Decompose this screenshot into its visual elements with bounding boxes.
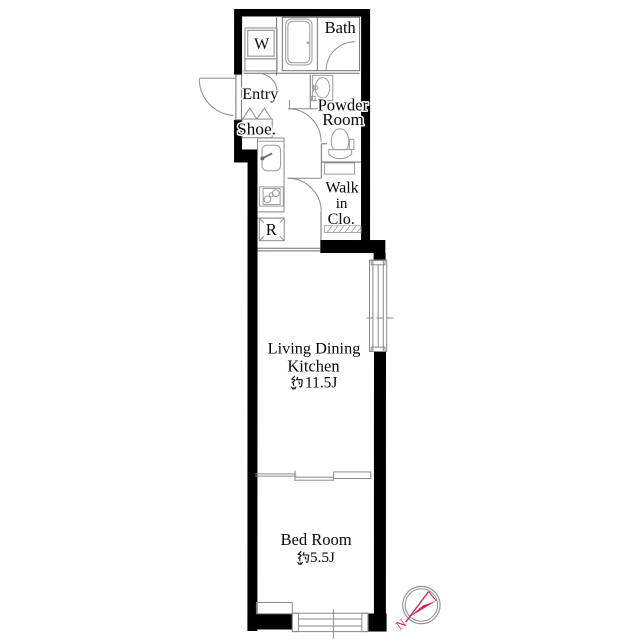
svg-text:Living Dining: Living Dining — [268, 338, 361, 357]
svg-text:R: R — [266, 220, 277, 239]
svg-text:Bath: Bath — [325, 18, 357, 37]
svg-text:Room: Room — [322, 110, 364, 129]
svg-text:Walk: Walk — [325, 179, 358, 196]
svg-text:5.5J: 5.5J — [310, 549, 335, 566]
svg-text:Kitchen: Kitchen — [287, 356, 339, 375]
svg-text:W: W — [254, 36, 270, 53]
svg-text:Clo.: Clo. — [328, 211, 355, 228]
svg-text:Shoe.: Shoe. — [237, 119, 276, 138]
svg-text:in: in — [336, 196, 348, 212]
svg-text:Entry: Entry — [242, 84, 279, 103]
svg-text:11.5J: 11.5J — [305, 374, 337, 391]
svg-text:Bed Room: Bed Room — [281, 530, 352, 549]
